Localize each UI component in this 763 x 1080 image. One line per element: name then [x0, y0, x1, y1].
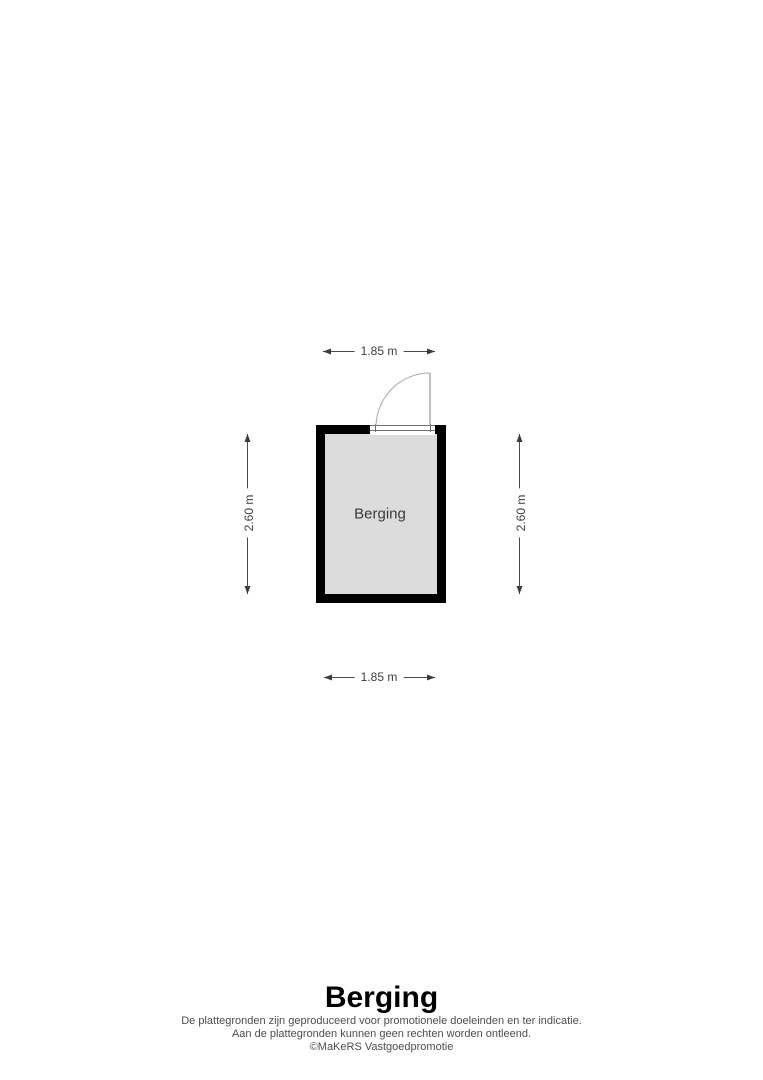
- dimension-label-bottom: 1.85 m: [355, 670, 404, 684]
- disclaimer-line-1: De plattegronden zijn geproduceerd voor …: [0, 1015, 763, 1028]
- dimension-label-left: 2.60 m: [242, 489, 256, 538]
- copyright-line: ©MaKeRS Vastgoedpromotie: [0, 1041, 763, 1054]
- dim-arrow-top-right: [427, 349, 435, 355]
- dim-arrow-right-bottom: [517, 586, 523, 594]
- dim-arrow-bottom-left: [324, 675, 332, 681]
- dimension-label-top: 1.85 m: [355, 344, 404, 358]
- dim-arrow-left-top: [245, 434, 251, 442]
- room-label: Berging: [354, 506, 406, 523]
- wall-right: [437, 425, 446, 603]
- footer-disclaimer: De plattegronden zijn geproduceerd voor …: [0, 1015, 763, 1054]
- dim-arrow-top-left: [323, 349, 331, 355]
- dimension-label-right: 2.60 m: [514, 489, 528, 538]
- wall-bottom: [316, 594, 446, 603]
- page-title: Berging: [0, 981, 763, 1015]
- floorplan-page: 1.85 m 1.85 m 2.60 m 2.60 m Berging Berg…: [0, 0, 763, 1080]
- wall-left: [316, 425, 325, 603]
- dim-arrow-left-bottom: [245, 586, 251, 594]
- floorplan-graphic: [0, 0, 763, 1080]
- disclaimer-line-2: Aan de plattegronden kunnen geen rechten…: [0, 1028, 763, 1041]
- door: [376, 373, 430, 426]
- dim-arrow-right-top: [517, 434, 523, 442]
- door-swing-arc: [376, 373, 430, 426]
- door-opening: [370, 424, 435, 435]
- dim-arrow-bottom-right: [427, 675, 435, 681]
